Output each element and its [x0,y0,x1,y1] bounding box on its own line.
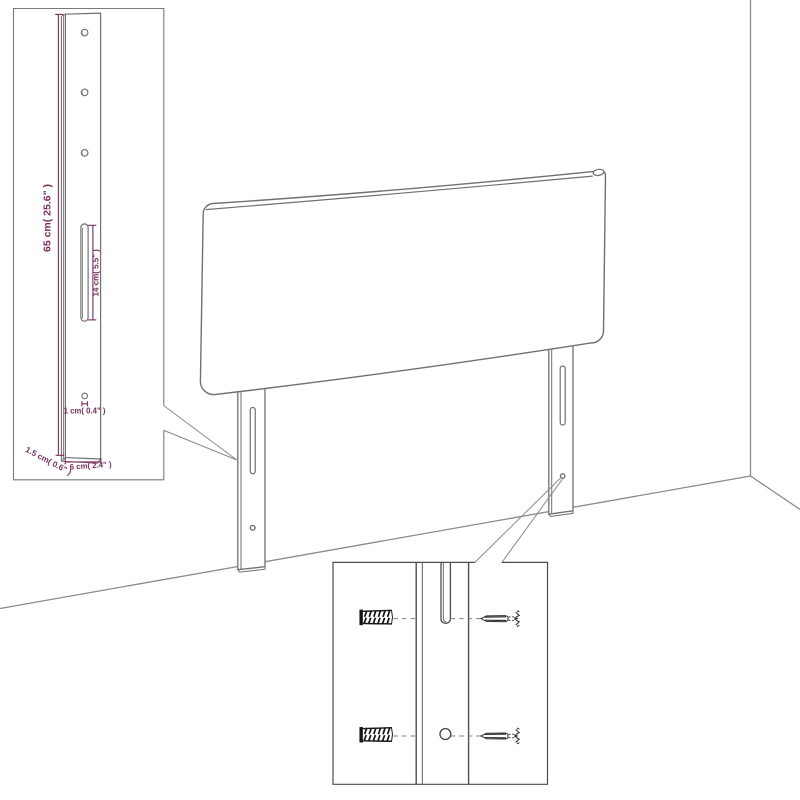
svg-text:1 cm( 0.4" ): 1 cm( 0.4" ) [64,406,106,415]
svg-text:14 cm( 5.5" ): 14 cm( 5.5" ) [91,249,100,297]
svg-text:65 cm( 25.6" ): 65 cm( 25.6" ) [41,184,53,252]
